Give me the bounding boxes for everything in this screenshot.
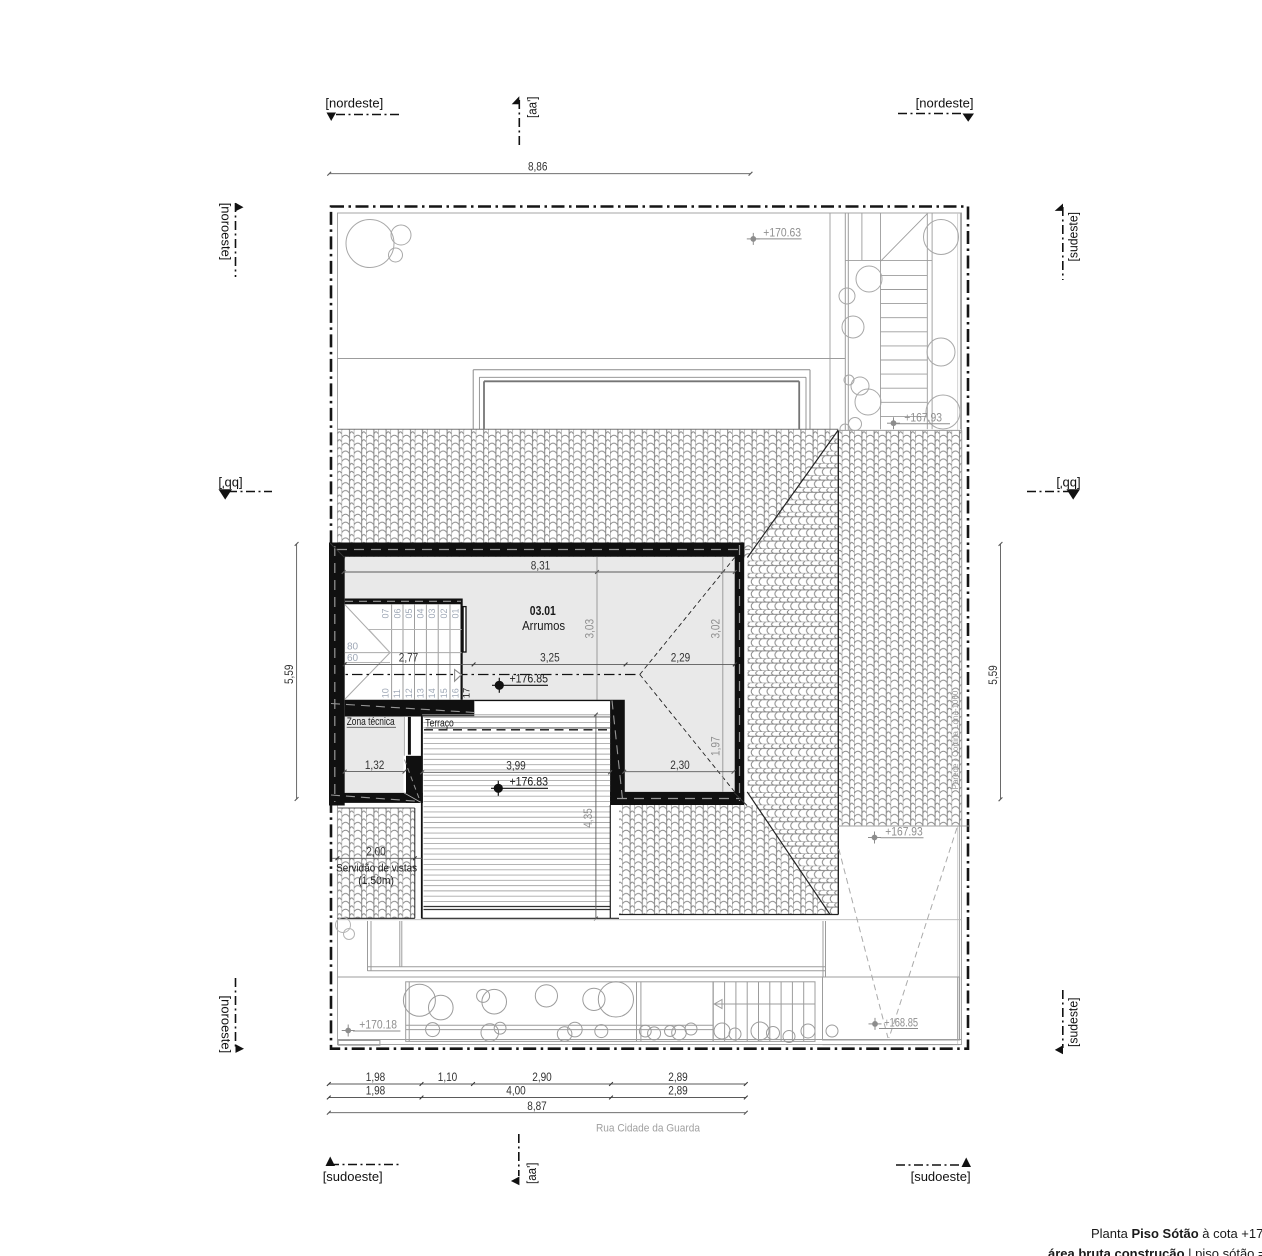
svg-text:4,35: 4,35 <box>581 808 595 828</box>
svg-text:60: 60 <box>347 653 359 664</box>
svg-text:3,02: 3,02 <box>708 619 722 639</box>
svg-text:[sudoeste]: [sudoeste] <box>323 1169 383 1184</box>
svg-text:+167.93: +167.93 <box>904 412 942 424</box>
svg-text:1,10: 1,10 <box>438 1070 458 1084</box>
svg-text:2,77: 2,77 <box>399 651 419 665</box>
svg-text:2,30: 2,30 <box>670 758 690 772</box>
svg-text:2,00: 2,00 <box>366 845 386 859</box>
svg-text:[noroeste]: [noroeste] <box>219 203 234 261</box>
svg-text:4,00: 4,00 <box>506 1084 526 1098</box>
svg-text:8,87: 8,87 <box>527 1099 547 1113</box>
svg-text:3,99: 3,99 <box>506 759 526 773</box>
svg-text:15: 15 <box>439 688 449 698</box>
svg-text:8,31: 8,31 <box>531 558 551 572</box>
svg-text:[bb']: [bb'] <box>1056 477 1080 492</box>
svg-text:1,98: 1,98 <box>366 1070 386 1084</box>
svg-text:[aa']: [aa'] <box>525 97 540 119</box>
svg-text:06: 06 <box>392 608 402 618</box>
svg-text:16: 16 <box>451 688 461 698</box>
svg-text:Rua Cidade da Guarda: Rua Cidade da Guarda <box>596 1123 701 1135</box>
svg-text:5,59: 5,59 <box>986 665 1000 685</box>
svg-text:2,90: 2,90 <box>532 1070 552 1084</box>
svg-text:14: 14 <box>427 688 437 698</box>
svg-text:(1,50m): (1,50m) <box>358 875 394 887</box>
svg-text:Planta Piso Sótão à cota +178: Planta Piso Sótão à cota +178 <box>1091 1226 1262 1241</box>
svg-text:03: 03 <box>427 608 437 618</box>
svg-text:+170.18: +170.18 <box>359 1019 397 1031</box>
svg-text:17: 17 <box>462 688 473 699</box>
svg-text:+176.85: +176.85 <box>510 672 549 686</box>
svg-text:12: 12 <box>404 688 414 698</box>
svg-text:Zona técnica: Zona técnica <box>347 716 396 728</box>
svg-text:03.01: 03.01 <box>530 604 556 618</box>
svg-text:07: 07 <box>381 608 391 618</box>
svg-text:3,25: 3,25 <box>540 651 560 665</box>
svg-text:[aa']: [aa'] <box>524 1163 539 1185</box>
svg-text:04: 04 <box>416 608 426 618</box>
svg-text:05: 05 <box>404 608 414 618</box>
svg-text:Servidão de vistas: Servidão de vistas <box>336 863 417 875</box>
svg-text:[sudeste]: [sudeste] <box>1066 998 1081 1048</box>
svg-text:+167.93: +167.93 <box>885 827 922 839</box>
svg-text:2,89: 2,89 <box>668 1084 688 1098</box>
svg-text:[nordeste]: [nordeste] <box>916 96 974 111</box>
svg-text:[bb']: [bb'] <box>218 477 242 492</box>
svg-text:02: 02 <box>439 608 449 618</box>
svg-text:01: 01 <box>451 608 461 618</box>
svg-text:1,97: 1,97 <box>708 736 722 756</box>
svg-text:80: 80 <box>347 642 359 653</box>
svg-text:+170.63: +170.63 <box>763 228 801 240</box>
svg-text:+168.85: +168.85 <box>884 1017 918 1029</box>
svg-text:10: 10 <box>381 688 391 698</box>
svg-text:[sudoeste]: [sudoeste] <box>911 1169 971 1184</box>
svg-text:[noroeste]: [noroeste] <box>219 996 234 1054</box>
svg-text:1,32: 1,32 <box>365 758 385 772</box>
svg-text:área bruta construção | piso s: área bruta construção | piso sótão = 03 <box>1048 1246 1262 1256</box>
svg-text:[sudeste]: [sudeste] <box>1066 212 1081 262</box>
svg-text:1,98: 1,98 <box>366 1084 386 1098</box>
svg-text:13: 13 <box>416 688 426 698</box>
svg-text:[nordeste]: [nordeste] <box>325 96 383 111</box>
svg-text:2,29: 2,29 <box>671 651 691 665</box>
svg-text:+176.83: +176.83 <box>510 775 549 789</box>
svg-text:3,03: 3,03 <box>583 619 597 639</box>
svg-text:8,86: 8,86 <box>528 160 548 174</box>
svg-text:5,59: 5,59 <box>282 664 296 684</box>
svg-text:Parede / Cortina Lona-1060: Parede / Cortina Lona-1060 <box>951 690 960 789</box>
svg-text:11: 11 <box>392 689 402 698</box>
svg-text:Arrumos: Arrumos <box>522 618 565 633</box>
svg-text:2,89: 2,89 <box>668 1070 688 1084</box>
